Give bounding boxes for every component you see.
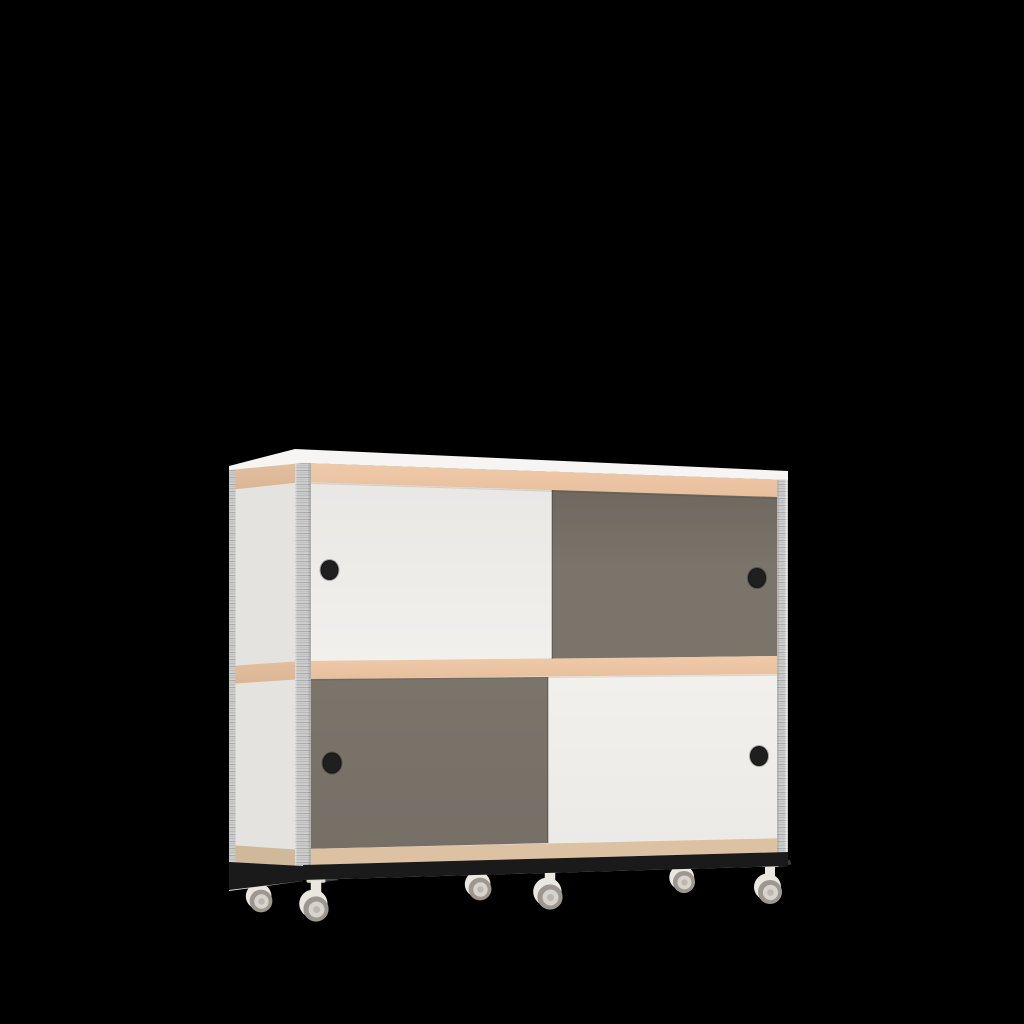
sliding-door-top-right-grey [552,490,777,659]
front-corner-edge-shade [309,460,312,866]
front-corner-edge-highlight [295,460,297,866]
right-corner-edge-shade [777,480,779,853]
left-corner-plywood-edge [229,466,236,864]
sliding-door-top-left-white [311,482,552,662]
cabinet-product-render [0,0,1024,1024]
right-corner-edge-highlight [786,480,788,853]
door-handle-bottom-left [323,753,342,774]
door-handle-top-right [748,568,766,588]
side-panel-shading [229,461,303,891]
door-handle-bottom-right [750,746,768,766]
door-handle-top-left [321,560,339,580]
sliding-door-bottom-right-white [548,674,777,843]
render-stage [0,0,1024,1024]
